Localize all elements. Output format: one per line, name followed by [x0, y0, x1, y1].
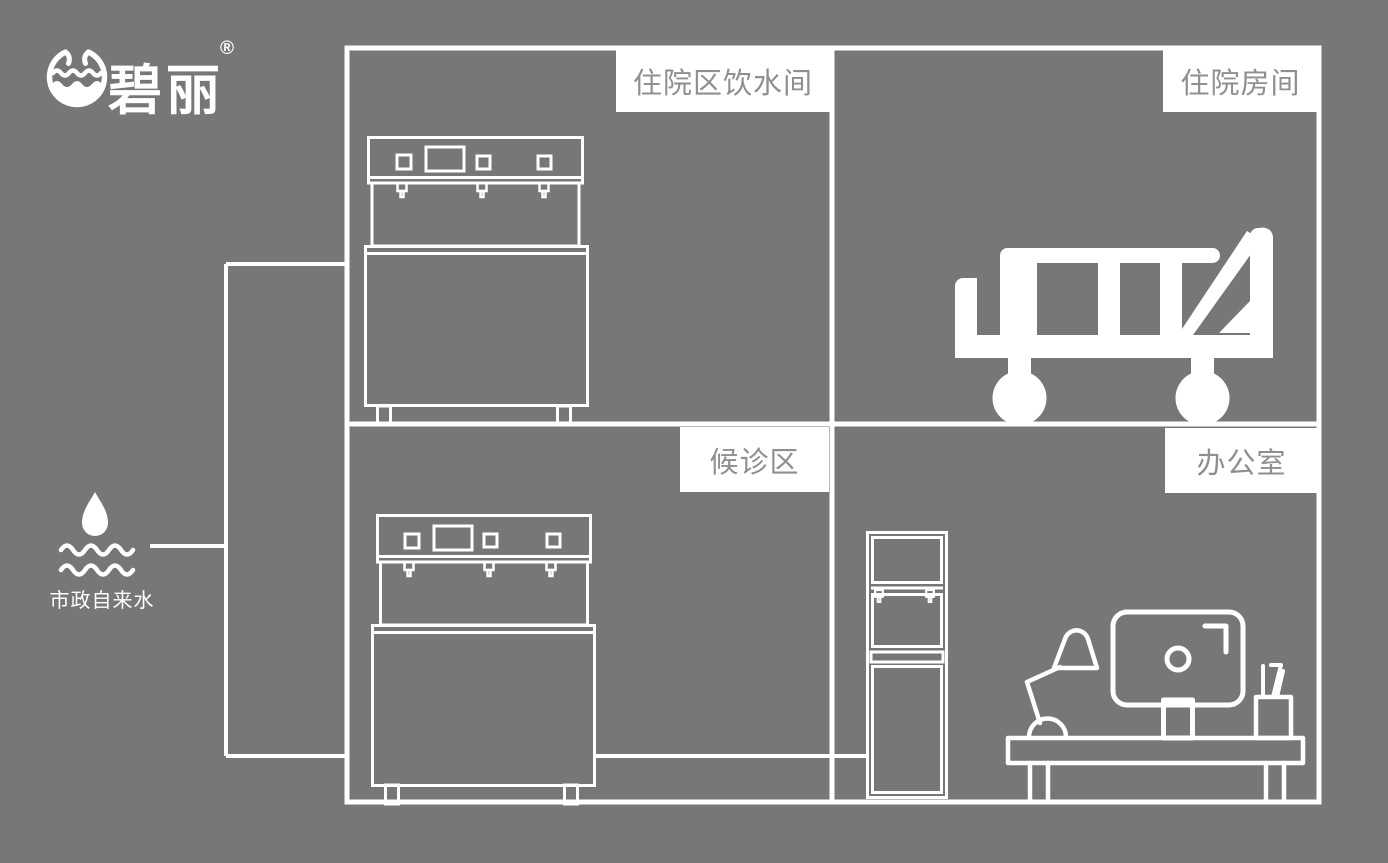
room-label-inpatient-drinking-room: 住院区饮水间 — [616, 49, 830, 112]
room-label-text: 住院区饮水间 — [633, 60, 813, 102]
diagram-canvas: 住院区饮水间 住院房间 候诊区 办公室 碧丽 ® 市政自来水 — [0, 0, 1388, 863]
desk-lamp-icon — [1027, 630, 1097, 737]
water-source-label: 市政自来水 — [37, 584, 167, 613]
pen-holder-icon — [1256, 665, 1291, 738]
registered-trademark: ® — [220, 38, 234, 60]
countertop-water-dispenser-icon — [373, 516, 595, 805]
pipe-lines — [150, 264, 869, 756]
wave-lines-icon — [61, 546, 133, 575]
vertical-water-dispenser-icon — [868, 533, 947, 798]
room-label-waiting-area: 候诊区 — [680, 427, 829, 492]
room-label-inpatient-room: 住院房间 — [1163, 49, 1318, 112]
room-label-text: 住院房间 — [1180, 60, 1300, 102]
brand-name: 碧丽 — [108, 46, 224, 125]
hospital-bed-icon — [955, 228, 1273, 425]
countertop-water-dispenser-icon — [366, 138, 588, 426]
monitor-icon — [1113, 612, 1243, 738]
office-desk-scene — [1008, 612, 1303, 799]
room-label-text: 办公室 — [1196, 440, 1286, 482]
desk-icon — [1008, 738, 1303, 799]
room-label-text: 候诊区 — [709, 439, 799, 481]
building-walls — [347, 48, 1319, 802]
brand-logo-icon — [49, 52, 104, 104]
room-label-office: 办公室 — [1165, 428, 1318, 493]
water-drop-icon — [61, 492, 133, 575]
